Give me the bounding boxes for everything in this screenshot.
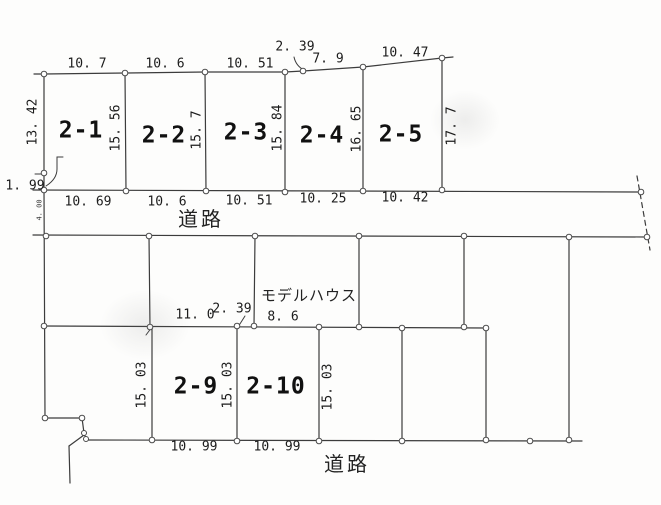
dim-label: 10. 25 (300, 193, 347, 206)
plot-label-2-5: 2-5 (379, 124, 424, 147)
dim-label: 10. 7 (67, 58, 106, 71)
dim-label: 16. 65 (351, 106, 364, 153)
dim-label: 15. 84 (272, 105, 285, 152)
dim-label: 7. 9 (312, 53, 343, 66)
dim-label: 15. 03 (136, 362, 149, 409)
dim-label: 13. 42 (27, 99, 40, 146)
dim-label: 15. 56 (110, 105, 123, 152)
road-label-lower: 道路 (324, 454, 370, 474)
dim-label: 15. 03 (322, 364, 335, 411)
survey-nodes (41, 55, 650, 444)
plot-label-2-10: 2-10 (246, 376, 305, 399)
dim-label: 10. 69 (65, 196, 112, 209)
plot-map-svg (0, 0, 661, 505)
dim-label: 1. 99 (5, 180, 44, 193)
plot-label-2-3: 2-3 (224, 122, 269, 145)
middle-row-dividers (44, 236, 569, 440)
dim-label: 15. 03 (222, 362, 235, 409)
plot-label-2-2: 2-2 (142, 125, 187, 148)
dim-label: 10. 42 (382, 192, 429, 205)
dim-label: 15. 7 (191, 110, 204, 149)
left-boundary (44, 190, 86, 483)
dim-label: 10. 51 (227, 58, 274, 71)
road-label-upper: 道路 (178, 209, 224, 229)
dim-label: 10. 6 (145, 58, 184, 71)
model-house-label: モデルハウス (261, 289, 357, 304)
road-width-dim: 4. 00 (37, 199, 44, 220)
dim-label: 10. 99 (171, 441, 218, 454)
dim-label: 11. 0 (175, 309, 214, 322)
land-plot-drawing: 10. 7 10. 6 10. 51 2. 39 7. 9 10. 47 10.… (0, 0, 661, 505)
plot-label-2-1: 2-1 (59, 120, 104, 143)
plot-label-2-9: 2-9 (174, 376, 219, 399)
plot-label-2-4: 2-4 (300, 125, 345, 148)
dim-label: 2. 39 (212, 303, 251, 316)
dim-label: 2. 39 (275, 41, 314, 54)
dim-label: 17. 7 (446, 106, 459, 145)
dim-label: 10. 47 (382, 47, 429, 60)
dim-label: 8. 6 (267, 311, 298, 324)
road-lines (33, 235, 647, 441)
dim-label: 10. 51 (226, 195, 273, 208)
dim-label: 10. 99 (254, 441, 301, 454)
